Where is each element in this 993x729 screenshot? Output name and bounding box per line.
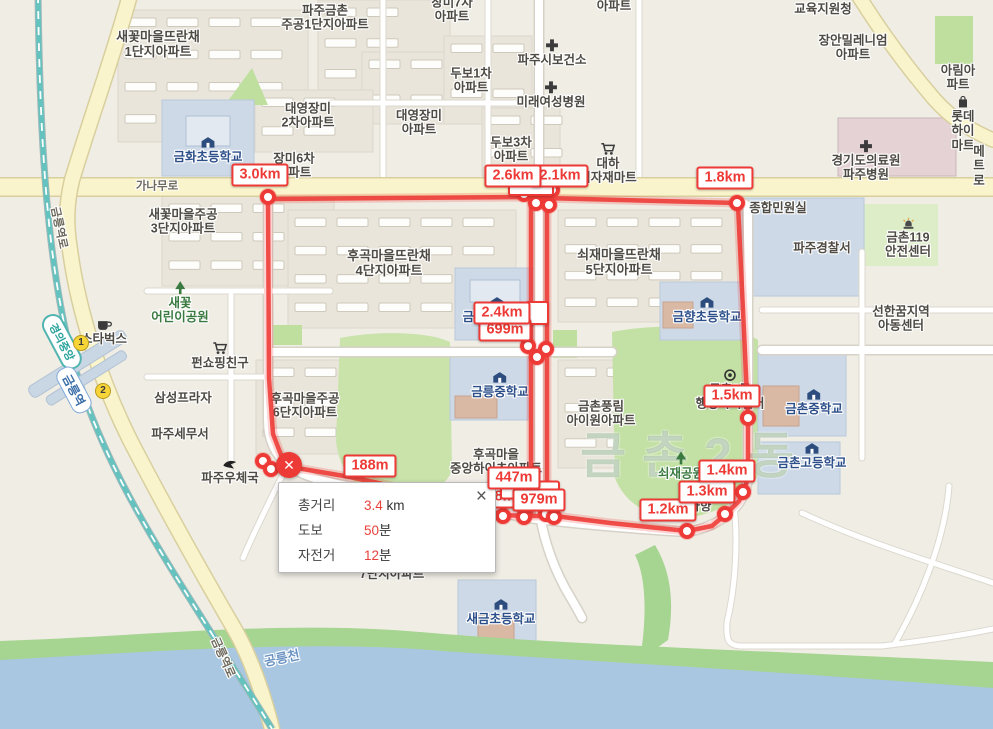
popup-row-label: 총거리 <box>298 493 364 518</box>
distance-label: 1.5km <box>703 385 760 408</box>
popup-row: 총거리3.4 km <box>298 493 481 518</box>
distance-label: 1.8km <box>696 167 753 190</box>
measure-vertex[interactable] <box>495 508 511 524</box>
popup-row-value: 12분 <box>364 543 391 568</box>
distance-label: 979m <box>512 489 565 512</box>
measure-vertex[interactable] <box>717 506 733 522</box>
measure-end-button[interactable]: ✕ <box>276 452 302 478</box>
measure-vertex[interactable] <box>735 484 751 500</box>
popup-rows: 총거리3.4 km도보50분자전거12분 <box>298 493 481 568</box>
popup-row-value: 50분 <box>364 518 391 543</box>
distance-label: 1.4km <box>698 460 755 483</box>
station-exit-2: 2 <box>95 383 111 399</box>
popup-row: 자전거12분 <box>298 543 481 568</box>
distance-label: 2.6km <box>484 165 541 188</box>
measure-vertex[interactable] <box>679 523 695 539</box>
measure-vertex[interactable] <box>529 349 545 365</box>
popup-row-value: 3.4 km <box>364 493 405 518</box>
popup-row: 도보50분 <box>298 518 481 543</box>
measure-vertex[interactable] <box>260 189 276 205</box>
distance-label: 188m <box>343 455 396 478</box>
map-canvas[interactable]: 금촌2동 새꽃마을뜨란채 1단지아파트파주금촌 주공1단지아파트장미7차 아파트… <box>0 0 993 729</box>
popup-row-label: 자전거 <box>298 543 364 568</box>
measure-vertex[interactable] <box>541 197 557 213</box>
distance-label: 2.4km <box>473 302 530 325</box>
distance-label: 447m <box>487 467 540 490</box>
measure-vertex[interactable] <box>740 410 756 426</box>
station-exit-1: 1 <box>73 335 89 351</box>
measure-vertex[interactable] <box>729 195 745 211</box>
distance-label: 3.0km <box>231 164 288 187</box>
popup-row-label: 도보 <box>298 518 364 543</box>
measure-summary-popup: × 총거리3.4 km도보50분자전거12분 <box>278 482 496 573</box>
distance-label: 1.3km <box>678 481 735 504</box>
basemap-graphics <box>0 0 993 729</box>
